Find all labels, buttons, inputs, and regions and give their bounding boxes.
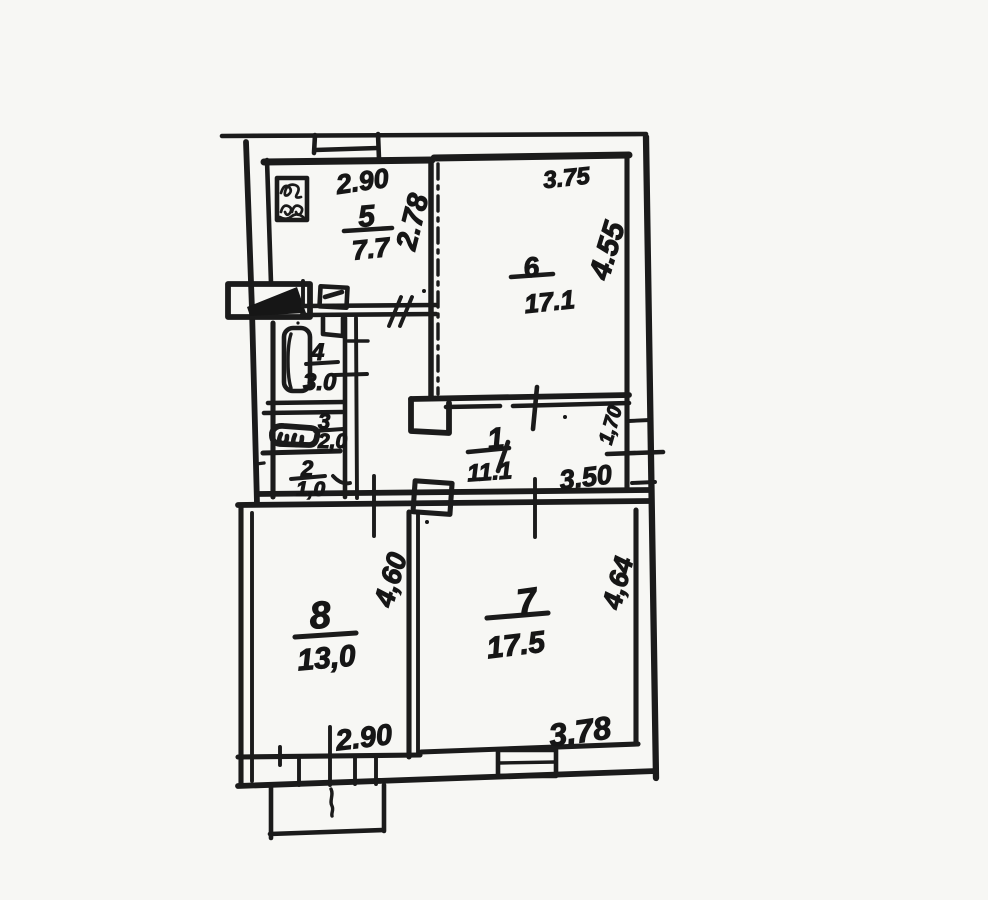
svg-text:2,0: 2,0	[317, 430, 348, 453]
svg-text:13,0: 13,0	[296, 639, 357, 677]
svg-text:4,64: 4,64	[596, 553, 639, 613]
svg-text:2.90: 2.90	[333, 719, 394, 758]
svg-text:1,0: 1,0	[296, 478, 326, 501]
svg-text:4: 4	[310, 339, 324, 366]
svg-text:3.75: 3.75	[542, 162, 592, 194]
svg-text:7.7: 7.7	[351, 232, 393, 266]
svg-text:8: 8	[308, 594, 334, 638]
svg-text:17.5: 17.5	[485, 625, 548, 665]
svg-text:3.50: 3.50	[558, 459, 614, 495]
svg-text:1,70: 1,70	[595, 404, 627, 447]
svg-text:3.0: 3.0	[303, 369, 337, 396]
svg-text:6: 6	[521, 251, 541, 284]
svg-text:17.1: 17.1	[523, 284, 576, 319]
svg-text:11.1: 11.1	[466, 457, 513, 487]
svg-text:1: 1	[486, 422, 506, 457]
svg-text:7: 7	[514, 579, 541, 623]
svg-text:2.90: 2.90	[333, 163, 390, 200]
svg-text:4,60: 4,60	[368, 549, 413, 611]
svg-text:5: 5	[357, 199, 378, 233]
